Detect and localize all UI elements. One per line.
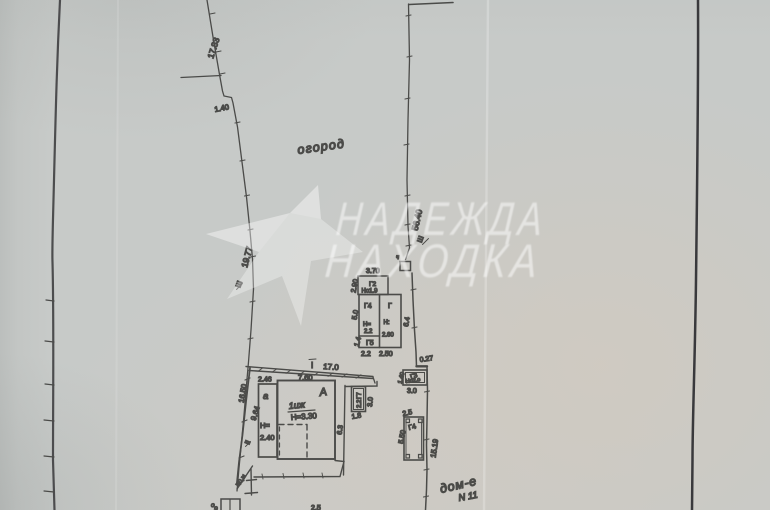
svg-text:II: II xyxy=(244,439,252,445)
svg-text:3.0: 3.0 xyxy=(367,397,375,407)
svg-text:Н=: Н= xyxy=(260,421,270,430)
svg-text:0.27: 0.27 xyxy=(419,355,434,364)
svg-text:2.5: 2.5 xyxy=(311,505,321,510)
svg-text:9.64: 9.64 xyxy=(249,405,262,422)
svg-text:9: 9 xyxy=(214,506,218,510)
svg-text:1.4: 1.4 xyxy=(354,336,363,347)
svg-text:2.2: 2.2 xyxy=(361,351,371,358)
svg-text:Н=: Н= xyxy=(363,322,371,328)
svg-text:6.4: 6.4 xyxy=(403,316,412,327)
svg-text:Н=3.30: Н=3.30 xyxy=(291,411,318,422)
svg-text:1иж: 1иж xyxy=(288,399,306,411)
svg-text:2.40: 2.40 xyxy=(260,433,275,442)
svg-text:1.8: 1.8 xyxy=(351,412,362,421)
svg-text:I: I xyxy=(311,361,313,370)
svg-text:Г: Г xyxy=(388,303,392,310)
svg-text:1.40: 1.40 xyxy=(214,102,230,114)
svg-text:2.2: 2.2 xyxy=(364,329,373,335)
svg-text:Н:: Н: xyxy=(384,320,390,326)
svg-text:Г4: Г4 xyxy=(408,423,417,432)
svg-text:2.60: 2.60 xyxy=(382,333,394,339)
svg-text:15.19: 15.19 xyxy=(429,438,441,458)
svg-text:Но2.о: Но2.о xyxy=(405,377,420,385)
svg-text:а: а xyxy=(263,391,268,402)
svg-text:НАХОДКА: НАХОДКА xyxy=(323,236,544,288)
svg-text:Но1.9: Но1.9 xyxy=(362,289,379,295)
svg-text:17.0: 17.0 xyxy=(323,362,340,372)
svg-text:3.0: 3.0 xyxy=(407,388,417,395)
svg-text:17.83: 17.83 xyxy=(205,36,221,60)
svg-text:Г7: Г7 xyxy=(357,392,363,399)
svg-text:огород: огород xyxy=(296,136,345,157)
svg-text:Г5: Г5 xyxy=(366,340,374,347)
svg-text:Г4: Г4 xyxy=(364,303,372,310)
svg-text:2.46: 2.46 xyxy=(258,377,272,384)
svg-text:2.50: 2.50 xyxy=(379,351,393,358)
svg-text:А: А xyxy=(318,386,328,399)
svg-text:2.2: 2.2 xyxy=(357,399,363,408)
svg-text:N 11: N 11 xyxy=(458,490,479,504)
svg-text:7.60: 7.60 xyxy=(298,373,313,382)
